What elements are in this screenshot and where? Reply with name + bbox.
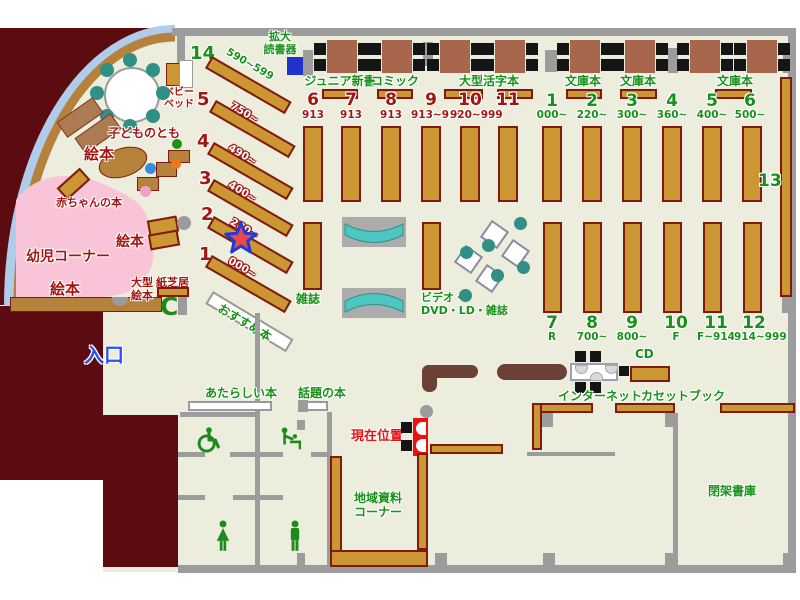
pillar	[298, 400, 308, 412]
stack-6-range: 913	[293, 109, 333, 121]
chair-dot	[459, 289, 472, 302]
video-shelf	[422, 222, 441, 290]
pillar	[783, 553, 795, 565]
stack-b7-range: R	[532, 331, 572, 343]
chair	[401, 440, 412, 451]
chair	[314, 43, 326, 55]
pillar	[297, 553, 305, 565]
man-icon	[283, 520, 307, 552]
chair-dot	[123, 53, 137, 67]
chair-dot	[482, 239, 495, 252]
bookshelf	[460, 126, 480, 202]
bookshelf	[662, 126, 682, 202]
stack-13-number: 13	[758, 172, 782, 192]
stack-g2-range: 220~	[572, 109, 612, 121]
cushion-dot	[145, 163, 156, 174]
kids-5-number: 5	[197, 90, 210, 111]
bookshelf	[663, 222, 682, 313]
bookshelf	[381, 126, 401, 202]
cushion-dot	[171, 159, 181, 169]
chair-dot	[514, 217, 527, 230]
stack-g6-range: 500~	[730, 109, 770, 121]
doorway	[205, 495, 233, 500]
reading-table	[327, 40, 357, 73]
stack-8-range: 913	[371, 109, 411, 121]
doorway	[283, 495, 313, 500]
public-phone-icon: C	[160, 293, 178, 322]
stack-b11-range: F~914	[696, 331, 736, 343]
pillar	[420, 405, 433, 418]
bookshelf	[702, 126, 722, 202]
bookshelf	[623, 222, 642, 313]
pillar	[782, 297, 795, 313]
magazines-label: 雑誌	[296, 293, 320, 307]
chair-dot	[156, 86, 170, 100]
stack-g3-range: 300~	[612, 109, 652, 121]
chair	[590, 351, 601, 362]
pillar	[665, 553, 677, 565]
woman-icon	[211, 520, 235, 552]
stack-7-number: 7	[331, 91, 371, 111]
bookshelf	[498, 126, 518, 202]
ehon-label-top: 絵本	[84, 146, 114, 163]
chair	[401, 422, 412, 433]
stack-g5-range: 400~	[692, 109, 732, 121]
section-bunko-3: 文庫本	[711, 75, 759, 89]
pillar	[543, 553, 555, 565]
stack-8-number: 8	[371, 91, 411, 111]
reading-table	[570, 40, 600, 73]
library-floor-map: 拡大 読書器 ジュニア新書 コミック 大型活字本 文庫本 文庫本 文庫本 6 9…	[0, 0, 800, 600]
chair	[575, 351, 586, 362]
akachan-books-label: 赤ちゃんの本	[56, 197, 122, 210]
bookshelf	[421, 126, 441, 202]
wall	[527, 452, 615, 456]
cd-label: CD	[635, 348, 654, 362]
stack-11-number: 11	[488, 91, 528, 111]
bookshelf	[743, 222, 762, 313]
bookshelf	[583, 222, 602, 313]
reading-table	[495, 40, 525, 73]
section-large-print: 大型活字本	[449, 75, 529, 89]
shelf	[532, 403, 542, 450]
doorway	[283, 452, 311, 457]
wall-bottom	[178, 565, 796, 573]
current-location-marker	[413, 418, 428, 456]
pillar	[788, 413, 795, 427]
new-books-label: あたらしい本	[205, 387, 277, 401]
section-bunko-1: 文庫本	[559, 75, 607, 89]
current-location-label: 現在位置	[351, 430, 403, 445]
stack-10-number: 10	[450, 91, 490, 111]
wall	[180, 412, 258, 417]
bookshelf	[303, 126, 323, 202]
large-picture-books-label: 大型 絵本	[131, 277, 153, 302]
stack-b10-range: F	[656, 331, 696, 343]
magnifier-label: 拡大 読書器	[256, 31, 304, 56]
wall	[673, 413, 678, 566]
chair	[314, 59, 326, 71]
stack-b9-range: 800~	[612, 331, 652, 343]
wall	[255, 313, 260, 566]
cassette-shelf	[615, 403, 675, 413]
stack-b8-range: 700~	[572, 331, 612, 343]
cushion-dot	[172, 139, 182, 149]
chair-dot	[460, 246, 473, 259]
pillar	[178, 297, 187, 315]
new-books-shelf	[188, 401, 272, 411]
internet-label: インターネット	[558, 390, 642, 404]
stack-g1-range: 000~	[532, 109, 572, 121]
bookshelf	[582, 126, 602, 202]
local-materials-shelf	[330, 550, 428, 567]
local-materials-label: 地域資料 コーナー	[338, 492, 418, 520]
kodomonotomo-label: 子どものとも	[108, 127, 180, 141]
baby-changing-icon	[277, 426, 303, 452]
chair	[619, 366, 629, 376]
internet-desk	[570, 363, 618, 381]
reading-table	[747, 40, 777, 73]
reading-table	[625, 40, 655, 73]
stack-b12-range: 914~999	[734, 331, 774, 343]
reading-table	[382, 40, 412, 73]
pillar	[545, 50, 557, 72]
shelf	[430, 444, 503, 454]
topical-books-label: 話題の本	[298, 387, 346, 401]
entrance-label: 入口	[84, 344, 124, 367]
pillar	[435, 553, 447, 565]
bookshelf	[703, 222, 722, 313]
toddler-corner-label: 幼児コーナー	[26, 249, 110, 265]
stack-6-number: 6	[293, 91, 333, 111]
pillar	[542, 413, 553, 427]
stack-g4-range: 360~	[652, 109, 692, 121]
shelf	[720, 403, 795, 413]
local-materials-shelf	[417, 453, 428, 550]
baby-bed	[179, 60, 193, 88]
service-counter	[422, 365, 437, 392]
cassette-label: カセットブック	[641, 390, 725, 404]
stack-10-range: 920~999	[450, 109, 490, 121]
chair-dot	[146, 63, 160, 77]
ehon-label-mid: 絵本	[116, 234, 144, 250]
stack-9-number: 9	[411, 91, 451, 111]
bookshelf	[341, 126, 361, 202]
pillar	[177, 216, 191, 230]
closed-stacks-label: 閉架書庫	[708, 485, 756, 499]
magazine-shelf	[303, 222, 322, 290]
section-comic: コミック	[363, 75, 427, 89]
chair-dot	[146, 109, 160, 123]
cushion-dot	[140, 186, 151, 197]
chair-dot	[517, 261, 530, 274]
ehon-label-bottom: 絵本	[50, 281, 80, 298]
bookshelf	[543, 222, 562, 313]
chair-dot	[491, 269, 504, 282]
pillar	[303, 50, 313, 76]
bookshelf	[542, 126, 562, 202]
reading-table	[690, 40, 720, 73]
kids-4-number: 4	[197, 132, 210, 153]
wheelchair-icon	[195, 426, 223, 454]
magnifier-device-icon	[287, 57, 303, 75]
section-bunko-2: 文庫本	[614, 75, 662, 89]
star-marker-icon	[223, 221, 259, 257]
chair-dot	[100, 63, 114, 77]
service-counter	[497, 364, 567, 380]
stack-7-range: 913	[331, 109, 371, 121]
topical-books-shelf	[306, 401, 328, 411]
stack-9-range: 913~919	[411, 109, 451, 121]
cd-shelf	[630, 366, 670, 382]
reading-table	[440, 40, 470, 73]
wall-stub-topleft	[177, 28, 185, 64]
bookshelf	[622, 126, 642, 202]
